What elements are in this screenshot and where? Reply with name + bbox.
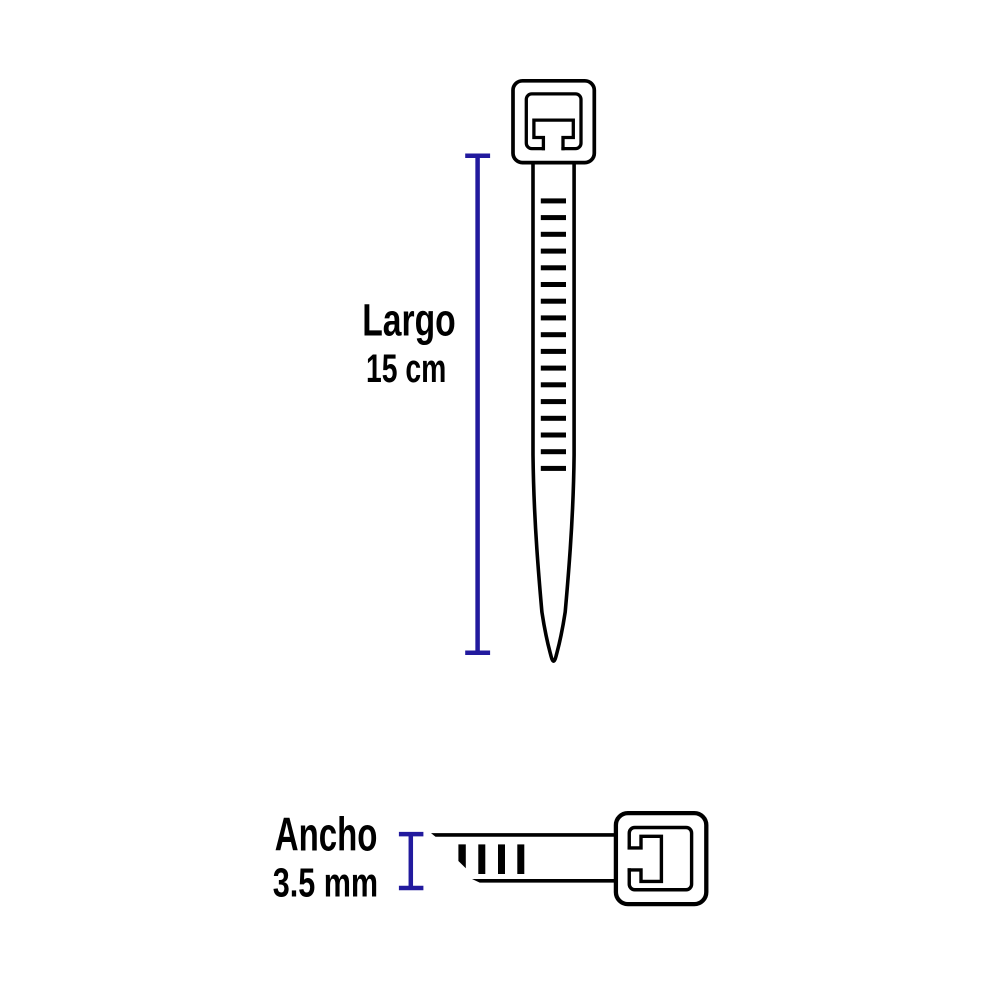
svg-text:Largo: Largo [362, 295, 456, 346]
svg-text:Ancho: Ancho [275, 808, 378, 861]
svg-text:15 cm: 15 cm [366, 347, 446, 391]
svg-text:3.5 mm: 3.5 mm [273, 860, 378, 906]
